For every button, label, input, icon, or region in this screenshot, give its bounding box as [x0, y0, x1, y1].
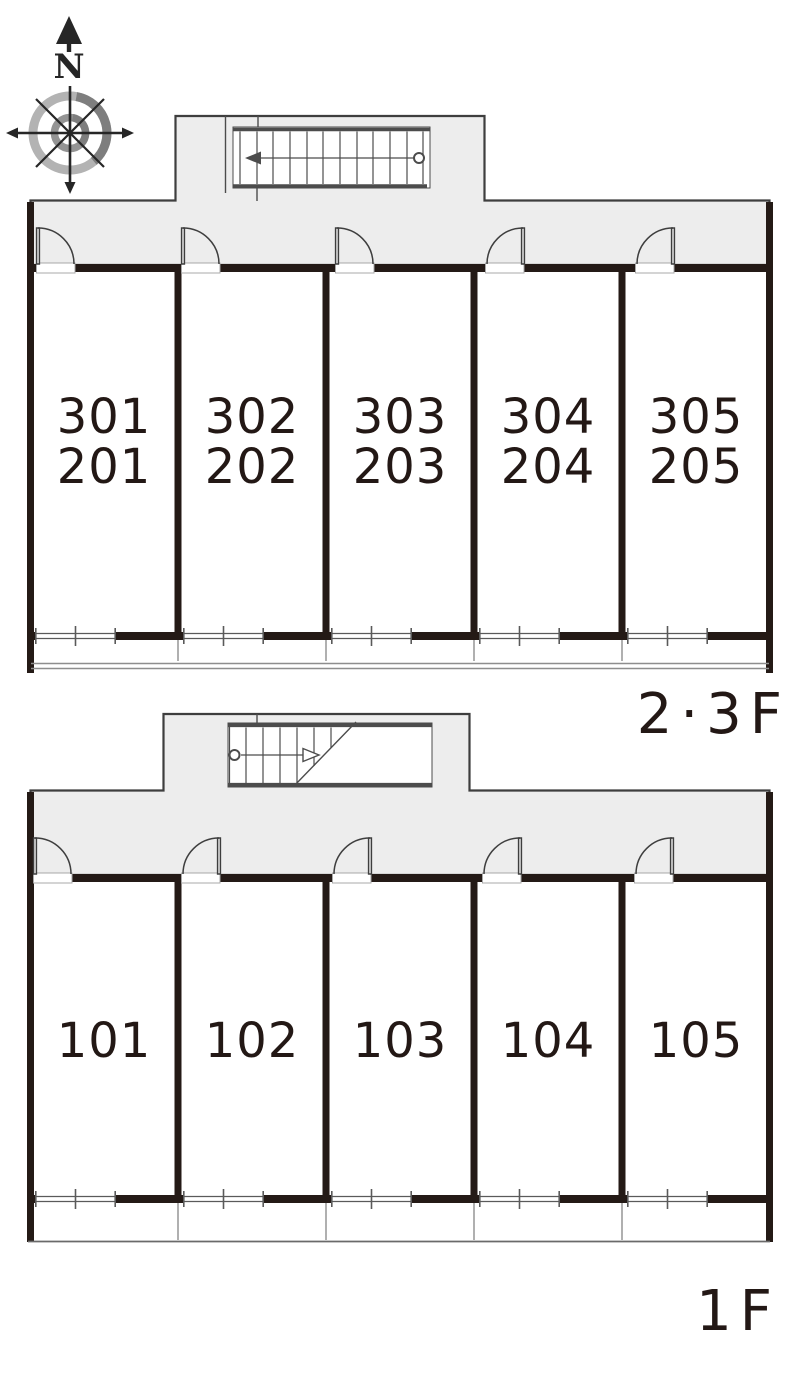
balcony-2-3f	[31, 640, 769, 669]
room-number: 305	[649, 389, 744, 445]
staircase-1f	[228, 714, 432, 787]
compass-star-icon	[6, 86, 134, 194]
room-labels-2-3f: 301 201 302 202 303 203 304 204 305 205	[57, 389, 744, 495]
floorplan-page: N	[0, 0, 800, 1373]
room-number: 202	[205, 439, 300, 495]
divider-wall	[323, 268, 330, 640]
divider-wall	[323, 878, 330, 1203]
window-304	[479, 626, 560, 646]
room-number: 205	[649, 439, 744, 495]
window-305	[627, 626, 708, 646]
room-number: 301	[57, 389, 152, 445]
floor-plan-1f: 101 102 103 104 105 1F	[27, 714, 780, 1344]
room-number: 303	[353, 389, 448, 445]
room-labels-1f: 101 102 103 104 105	[57, 1013, 744, 1069]
outer-wall-right	[766, 792, 773, 1242]
window-302	[183, 626, 264, 646]
floor-label-1f: 1F	[696, 1279, 780, 1344]
window-301	[35, 626, 116, 646]
room-number: 103	[353, 1013, 448, 1069]
window-104	[479, 1189, 560, 1209]
divider-wall	[175, 268, 182, 640]
room-number: 304	[501, 389, 596, 445]
floorplan-drawing: N	[0, 0, 800, 1373]
room-number: 302	[205, 389, 300, 445]
north-arrow-icon	[56, 16, 82, 44]
outer-wall-right	[766, 202, 773, 673]
divider-wall	[471, 878, 478, 1203]
window-103	[331, 1189, 412, 1209]
room-number: 203	[353, 439, 448, 495]
floor-plan-2-3f: 301 201 302 202 303 203 304 204 305 205 …	[27, 116, 790, 747]
room-number: 201	[57, 439, 152, 495]
window-101	[35, 1189, 116, 1209]
room-number: 102	[205, 1013, 300, 1069]
compass-outer-ring-shadow	[76, 97, 107, 162]
floor-label-2-3f: 2·3F	[637, 682, 790, 747]
terrace-1f	[28, 1203, 770, 1242]
window-102	[183, 1189, 264, 1209]
room-number: 104	[501, 1013, 596, 1069]
divider-wall	[619, 268, 626, 640]
divider-wall	[471, 268, 478, 640]
room-number: 101	[57, 1013, 152, 1069]
room-number: 204	[501, 439, 596, 495]
divider-wall	[175, 878, 182, 1203]
staircase-2-3f	[226, 116, 431, 201]
window-105	[627, 1189, 708, 1209]
window-303	[331, 626, 412, 646]
north-label: N	[53, 47, 84, 87]
outer-wall-left	[27, 202, 34, 673]
divider-wall	[619, 878, 626, 1203]
compass-rose: N	[6, 16, 134, 194]
room-number: 105	[649, 1013, 744, 1069]
